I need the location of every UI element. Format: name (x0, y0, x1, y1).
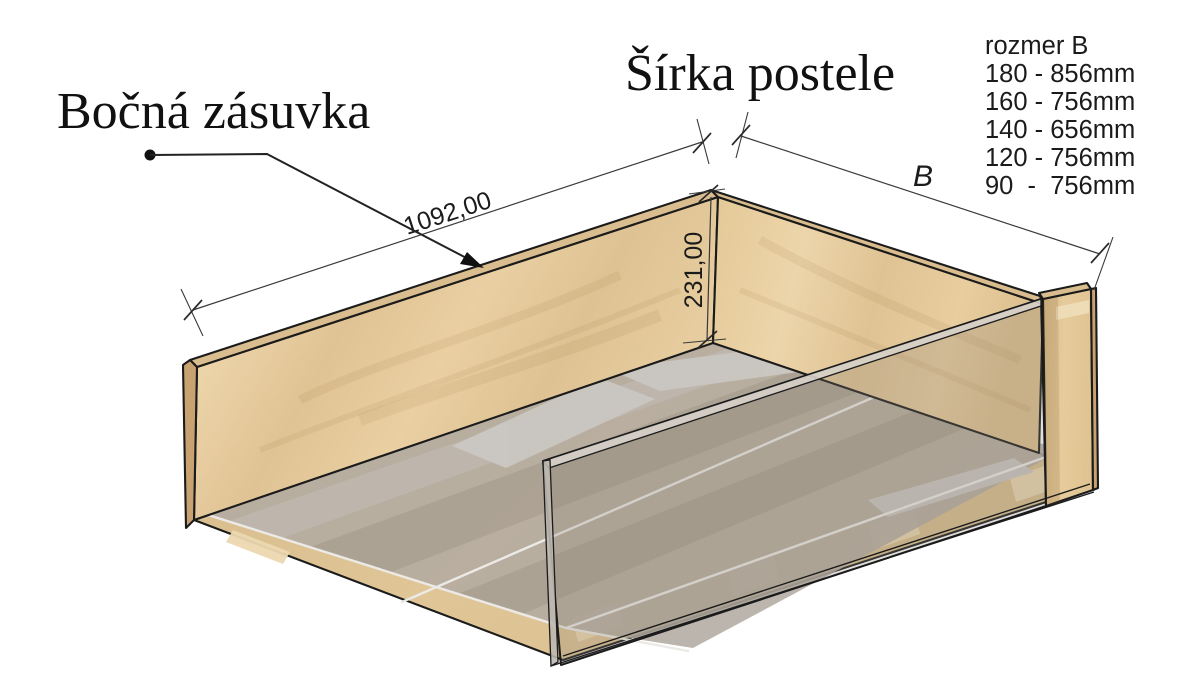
width-dimension-symbol: B (913, 160, 933, 193)
drawing-canvas: 1092,00 231,00 B Bočná zásuvka Š (0, 0, 1204, 700)
size-table-row: 120 - 756mm (985, 144, 1135, 172)
bed-width-label: Šírka postele (625, 44, 895, 102)
right-end-panel-right-edge (1091, 288, 1098, 490)
size-table-row: 140 - 656mm (985, 116, 1135, 144)
part-label: Bočná zásuvka (57, 83, 370, 140)
height-dimension-value: 231,00 (680, 232, 708, 308)
back-left-wall-end-edge (183, 360, 197, 528)
size-table-row: 160 - 756mm (985, 88, 1135, 116)
drawer-illustration (183, 190, 1098, 666)
right-end-panel (1039, 283, 1098, 506)
size-table-row: 90 - 756mm (985, 172, 1135, 200)
size-table-title: rozmer B (985, 32, 1088, 60)
size-table: rozmer B 180 - 856mm 160 - 756mm 140 - 6… (985, 32, 1135, 200)
leader-arrowhead (460, 252, 484, 268)
length-dimension-value: 1092,00 (400, 186, 495, 241)
size-table-row: 180 - 856mm (985, 60, 1135, 88)
